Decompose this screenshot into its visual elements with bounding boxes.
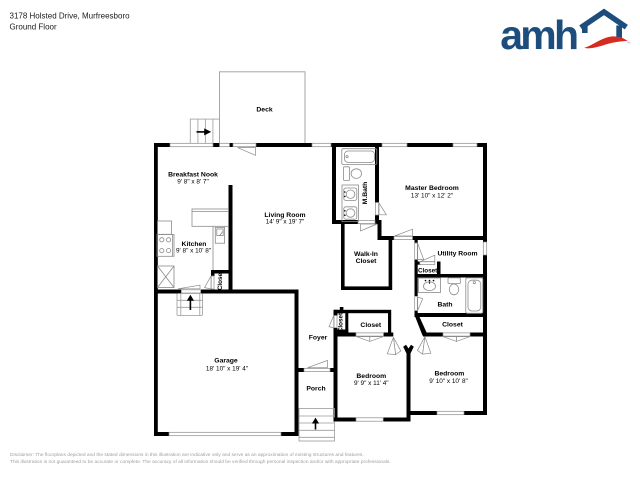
svg-text:™: ™ [627, 41, 631, 46]
svg-text:Closet: Closet [418, 268, 438, 275]
svg-text:3178 Holsted Drive, Murfreesbo: 3178 Holsted Drive, Murfreesboro [10, 12, 131, 21]
svg-text:Foyer: Foyer [309, 334, 328, 341]
svg-text:9' 9" x 11' 4": 9' 9" x 11' 4" [354, 380, 389, 387]
svg-text:Closet: Closet [360, 322, 382, 329]
svg-text:Walk-In: Walk-In [354, 251, 378, 258]
svg-text:Utility Room: Utility Room [437, 251, 477, 258]
svg-text:9' 8" x 10' 8": 9' 8" x 10' 8" [176, 247, 211, 254]
svg-text:Master Bedroom: Master Bedroom [405, 185, 459, 192]
svg-text:Disclaimer: The floorplans dep: Disclaimer: The floorplans depicted and … [10, 452, 364, 458]
svg-text:Breakfast Nook: Breakfast Nook [168, 171, 218, 178]
svg-text:amh: amh [500, 12, 577, 58]
svg-text:13' 10" x 12' 2": 13' 10" x 12' 2" [411, 192, 453, 199]
svg-text:Ground Floor: Ground Floor [10, 23, 57, 32]
svg-text:Bath: Bath [437, 302, 452, 309]
svg-text:9' 8" x 8' 7": 9' 8" x 8' 7" [177, 178, 209, 185]
svg-text:14' 9" x 19' 7": 14' 9" x 19' 7" [266, 218, 305, 225]
svg-text:Porch: Porch [306, 386, 325, 393]
svg-text:Garage: Garage [214, 358, 238, 365]
svg-text:18' 10" x 19' 4": 18' 10" x 19' 4" [206, 366, 248, 373]
svg-text:Bedroom: Bedroom [434, 371, 464, 378]
svg-text:This illustration is not guara: This illustration is not guaranteed to b… [10, 459, 391, 465]
svg-text:Closet: Closet [217, 270, 224, 290]
svg-text:Closet: Closet [442, 321, 464, 328]
svg-text:Closet: Closet [356, 258, 378, 265]
svg-text:M.Bath: M.Bath [362, 182, 369, 205]
svg-text:Deck: Deck [256, 106, 272, 113]
svg-text:9' 10" x 10' 8": 9' 10" x 10' 8" [429, 378, 468, 385]
svg-text:Closet: Closet [338, 312, 345, 332]
